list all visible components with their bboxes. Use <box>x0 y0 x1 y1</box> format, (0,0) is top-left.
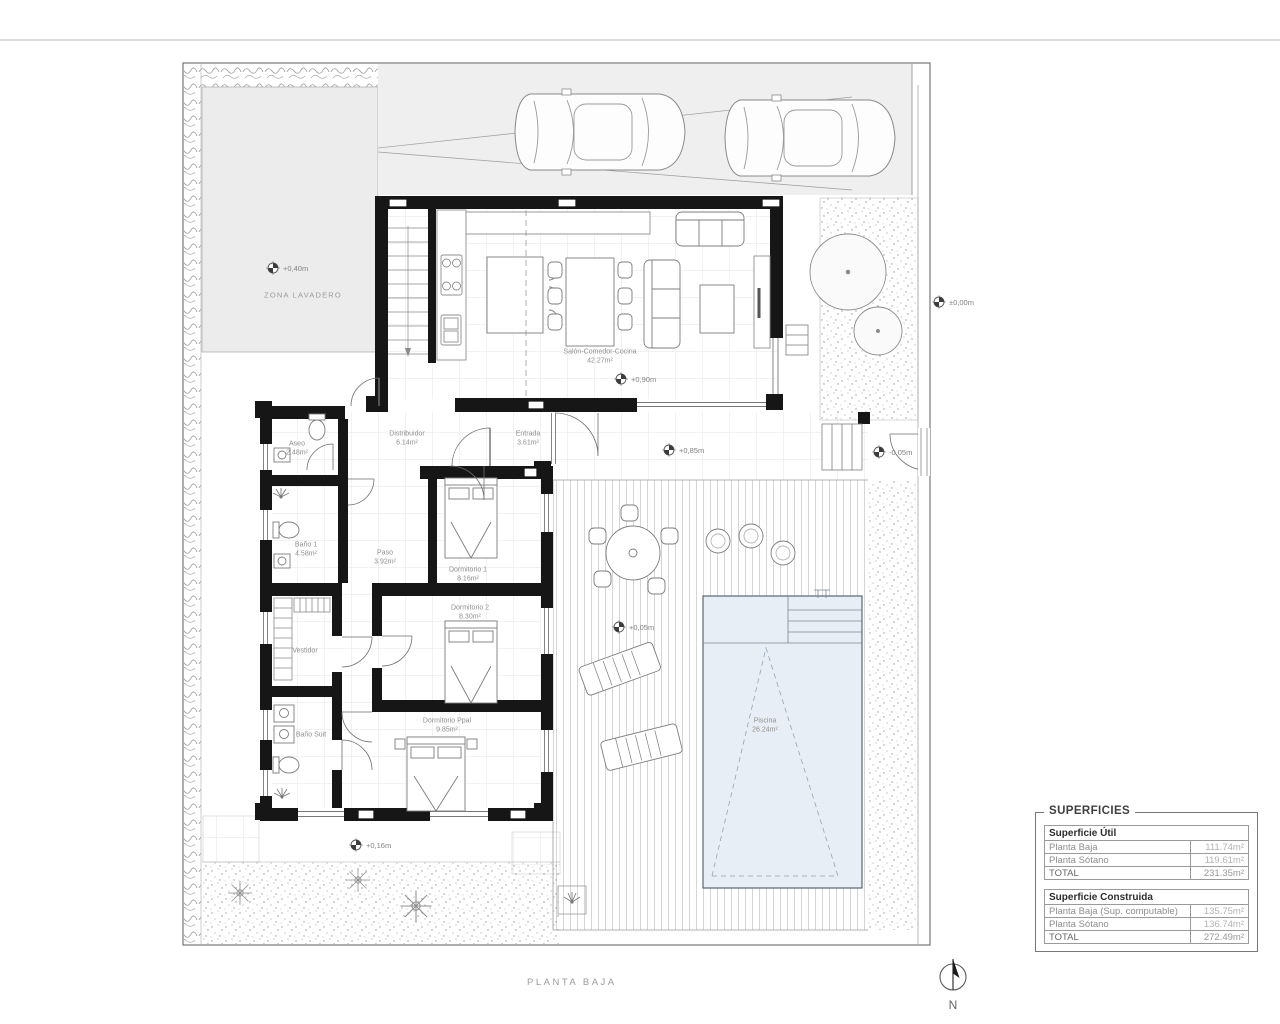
elevation-marker-south: +0,16m <box>349 838 391 852</box>
room-label-principal: Dormitorio Ppal 9.85m² <box>423 717 471 735</box>
room-name: Dormitorio 1 <box>449 566 487 575</box>
side-steps <box>786 325 808 355</box>
elevation-marker-plot: ±0,00m <box>932 295 974 309</box>
tv-unit <box>754 256 770 348</box>
room-area: 3.92m² <box>374 558 396 567</box>
superficies-title: SUPERFICIES <box>1044 805 1135 817</box>
room-label-dormitorio2: Dormitorio 2 8.30m² <box>451 604 489 622</box>
elevation-value: +0,85m <box>679 446 704 455</box>
row-label: Planta Baja <box>1045 841 1191 854</box>
table-total-row: TOTAL 272.49m² <box>1045 931 1249 944</box>
room-name: Dormitorio Ppal <box>423 717 471 726</box>
table-header-row: Superficie Construida <box>1045 890 1249 905</box>
row-value: 136.74m² <box>1191 918 1249 931</box>
room-area: 6.14m² <box>389 439 424 448</box>
table-total-row: TOTAL 231.35m² <box>1045 867 1249 880</box>
elevation-marker-laundry: +0,40m <box>266 261 308 275</box>
elevation-marker-entry: -0,05m <box>872 445 912 459</box>
north-label: N <box>930 998 976 1012</box>
floor-plan-sheet: ZONA LAVADERO Salón-Comedor-Cocina 42.27… <box>0 0 1280 1024</box>
row-label: TOTAL <box>1045 931 1191 944</box>
room-name: Distribuidor <box>389 430 424 439</box>
bed-dormitorio-2 <box>445 621 497 703</box>
room-label-dormitorio1: Dormitorio 1 8.16m² <box>449 566 487 584</box>
room-label-banosuit: Baño Suit <box>296 732 326 741</box>
elevation-value: +0,05m <box>629 623 654 632</box>
elevation-value: +0,40m <box>283 264 308 273</box>
elevation-marker-living: +0,90m <box>614 372 656 386</box>
bed-principal <box>395 737 477 811</box>
room-label-paso: Paso 3.92m² <box>374 549 396 567</box>
room-label-piscina: Piscina 26.24m² <box>752 717 778 735</box>
row-value: 135.75m² <box>1191 905 1249 918</box>
level-icon <box>662 443 676 457</box>
level-icon <box>612 620 626 634</box>
room-label-salon: Salón-Comedor-Cocina 42.27m² <box>563 348 636 366</box>
room-area: 2.48m² <box>286 449 308 458</box>
room-area: 8.16m² <box>449 575 487 584</box>
row-value: 119.61m² <box>1191 854 1249 867</box>
laundry-zone <box>202 87 378 352</box>
bed-dormitorio-1 <box>445 478 497 558</box>
row-label: Planta Sótano <box>1045 918 1191 931</box>
level-icon <box>932 295 946 309</box>
level-icon <box>349 838 363 852</box>
room-name: Salón-Comedor-Cocina <box>563 348 636 357</box>
elevation-marker-terrace: +0,05m <box>612 620 654 634</box>
room-name: Piscina <box>752 717 778 726</box>
room-name: Vestidor <box>292 648 317 657</box>
superficie-construida-table: Superficie Construida Planta Baja (Sup. … <box>1044 889 1249 944</box>
table-row: Planta Sótano 119.61m² <box>1045 854 1249 867</box>
table-header: Superficie Útil <box>1045 826 1249 841</box>
room-area: 3.61m² <box>516 439 541 448</box>
row-label: TOTAL <box>1045 867 1191 880</box>
room-area: 42.27m² <box>563 357 636 366</box>
pool <box>703 590 862 888</box>
car-1 <box>515 89 685 175</box>
room-name: Baño Suit <box>296 732 326 741</box>
room-label-vestidor: Vestidor <box>292 648 317 657</box>
room-name: Dormitorio 2 <box>451 604 489 613</box>
elevation-value: +0,16m <box>366 841 391 850</box>
coffee-table <box>700 285 734 333</box>
room-label-bano1: Baño 1 4.58m² <box>295 541 317 559</box>
north-arrow-icon <box>931 954 975 996</box>
level-icon <box>872 445 886 459</box>
room-name: Paso <box>374 549 396 558</box>
room-area: 26.24m² <box>752 726 778 735</box>
superficies-panel: SUPERFICIES Superficie Útil Planta Baja … <box>1035 812 1258 952</box>
elevation-marker-porch: +0,85m <box>662 443 704 457</box>
table-row: Planta Sótano 136.74m² <box>1045 918 1249 931</box>
sofa-1 <box>676 212 744 246</box>
elevation-value: -0,05m <box>889 448 912 457</box>
room-name: Aseo <box>286 440 308 449</box>
elevation-value: +0,90m <box>631 375 656 384</box>
room-area: 4.58m² <box>295 550 317 559</box>
table-row: Planta Baja 111.74m² <box>1045 841 1249 854</box>
car-2 <box>725 95 895 181</box>
row-value: 272.49m² <box>1191 931 1249 944</box>
table-header-row: Superficie Útil <box>1045 826 1249 841</box>
row-value: 111.74m² <box>1191 841 1249 854</box>
room-name: Entrada <box>516 430 541 439</box>
table-header: Superficie Construida <box>1045 890 1249 905</box>
room-label-entrada: Entrada 3.61m² <box>516 430 541 448</box>
row-label: Planta Baja (Sup. computable) <box>1045 905 1191 918</box>
sofa-2 <box>644 260 680 348</box>
drawing-title: PLANTA BAJA <box>527 977 617 988</box>
room-label-aseo: Aseo 2.48m² <box>286 440 308 458</box>
row-label: Planta Sótano <box>1045 854 1191 867</box>
room-label-distribuidor: Distribuidor 6.14m² <box>389 430 424 448</box>
table-row: Planta Baja (Sup. computable) 135.75m² <box>1045 905 1249 918</box>
room-area: 9.85m² <box>423 726 471 735</box>
room-area: 8.30m² <box>451 613 489 622</box>
level-icon <box>614 372 628 386</box>
superficie-util-table: Superficie Útil Planta Baja 111.74m² Pla… <box>1044 825 1249 880</box>
zone-label-text: ZONA LAVADERO <box>264 290 342 299</box>
carport <box>378 64 912 195</box>
room-name: Baño 1 <box>295 541 317 550</box>
north-arrow: N <box>930 954 976 1012</box>
elevation-value: ±0,00m <box>949 298 974 307</box>
zone-label-lavadero: ZONA LAVADERO <box>264 290 342 299</box>
level-icon <box>266 261 280 275</box>
row-value: 231.35m² <box>1191 867 1249 880</box>
